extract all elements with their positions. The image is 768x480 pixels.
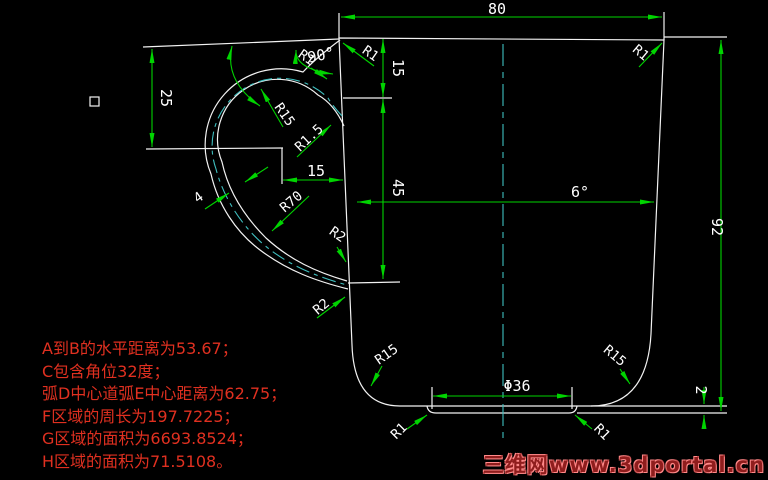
leader-r1-foot-left[interactable] (407, 415, 427, 429)
dim-text-25[interactable]: 25 (157, 89, 175, 107)
dim-text-r70[interactable]: R70 (277, 188, 306, 216)
dim-text-r1-c[interactable]: R1 (629, 42, 652, 65)
dim-text-r2-upper[interactable]: R2 (326, 224, 349, 246)
site-watermark: 三维网www.3dportal.cn (483, 449, 765, 479)
leader-r15-bottom-left[interactable] (371, 366, 382, 386)
leader-r1-handle-outer[interactable] (311, 68, 327, 79)
dim-text-r15-bl[interactable]: R15 (372, 341, 401, 368)
leader-r2-upper[interactable] (337, 247, 346, 262)
annotation-notes[interactable]: A到B的水平距离为53.67； C包含角位32度； 弧D中心道弧E中心距离为62… (42, 338, 286, 474)
dim-text-r2-lower[interactable]: R2 (310, 296, 333, 319)
dim-text-r1-5[interactable]: R1.5 (292, 121, 327, 155)
dim-text-92[interactable]: 92 (708, 218, 726, 236)
handle-outer-curve[interactable] (205, 40, 348, 289)
dim-text-r1-b[interactable]: R1 (359, 43, 382, 65)
note-line[interactable]: F区域的周长为197.7225； (42, 406, 286, 429)
point-marker-square[interactable] (90, 97, 99, 106)
dim-text-15h[interactable]: 15 (307, 162, 325, 180)
note-line[interactable]: H区域的面积为71.5108。 (42, 451, 286, 474)
cad-canvas[interactable]: 80 25 15 45 15 90° 6° 92 Φ36 2 4 R1 R1 R… (0, 0, 768, 480)
mug-handle-outline[interactable] (205, 40, 348, 289)
leader-r1-foot-right[interactable] (575, 415, 592, 429)
ext-line-loop-center-h[interactable] (146, 148, 283, 149)
dim-text-r15-loop[interactable]: R15 (271, 100, 298, 129)
dim-text-2[interactable]: 2 (692, 385, 710, 394)
dim-text-80[interactable]: 80 (488, 0, 506, 18)
dim-text-r15-br[interactable]: R15 (600, 342, 629, 370)
ext-line-45[interactable] (348, 282, 400, 283)
dim-text-r1-foot-right[interactable]: R1 (590, 421, 613, 444)
note-line[interactable]: C包含角位32度； (42, 361, 286, 384)
dim-text-4[interactable]: 4 (191, 189, 207, 207)
radius-leaders[interactable] (261, 43, 662, 429)
dim-text-6deg[interactable]: 6° (571, 183, 589, 201)
dim-text-45[interactable]: 45 (389, 179, 407, 197)
leader-r15-bottom-right[interactable] (620, 369, 630, 384)
ext-line-handle-top[interactable] (143, 39, 339, 47)
mug-foot-path[interactable] (427, 406, 577, 413)
dim-text-r1-foot-left[interactable]: R1 (388, 420, 411, 443)
dim-text-15v[interactable]: 15 (389, 59, 407, 77)
note-line[interactable]: A到B的水平距离为53.67； (42, 338, 286, 361)
dim-text-phi36[interactable]: Φ36 (503, 377, 530, 395)
note-line[interactable]: G区域的面积为6693.8524； (42, 428, 286, 451)
note-line[interactable]: 弧D中心道弧E中心距离为62.75； (42, 383, 286, 406)
dim-line-4-left[interactable] (205, 193, 229, 209)
dim-line-4-right[interactable] (245, 167, 268, 182)
